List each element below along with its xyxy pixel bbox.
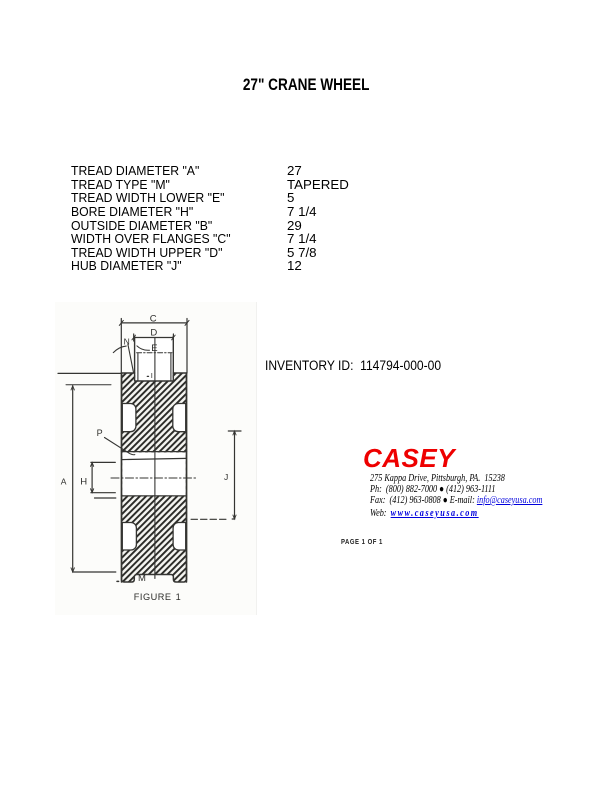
svg-text:I: I (151, 371, 153, 380)
svg-text:E: E (151, 343, 157, 354)
svg-text:C: C (150, 313, 157, 324)
svg-text:D: D (150, 328, 157, 339)
svg-text:H: H (80, 476, 87, 487)
svg-text:FIGURE: FIGURE (134, 592, 172, 602)
svg-text:P: P (97, 428, 103, 438)
svg-text:M: M (138, 573, 146, 584)
svg-text:A: A (61, 476, 67, 486)
svg-text:N: N (124, 337, 130, 347)
svg-text:1: 1 (176, 592, 181, 602)
svg-text:J: J (224, 472, 228, 482)
